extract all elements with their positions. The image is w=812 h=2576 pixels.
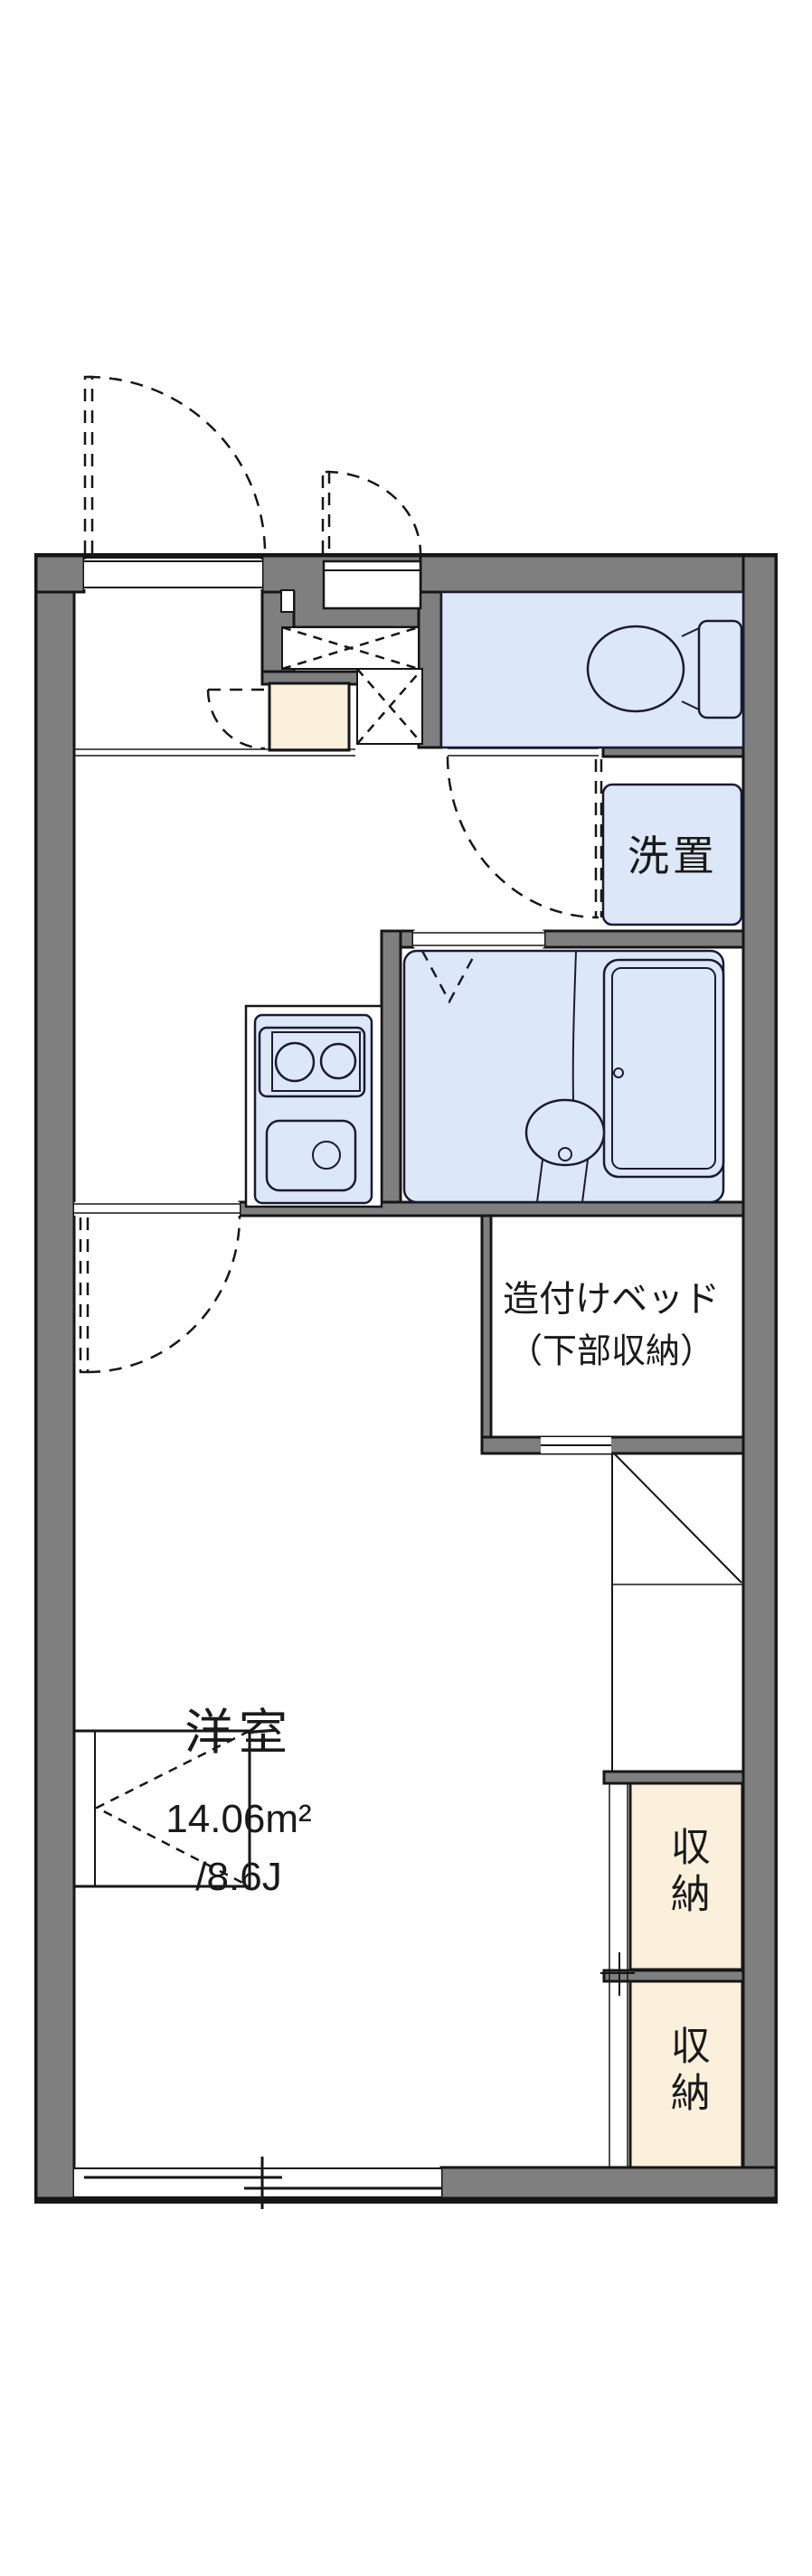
bathroom: [404, 951, 723, 1202]
wall-bed-bottom: [482, 1437, 743, 1453]
sink-icon: [267, 1121, 355, 1190]
hall-closet-door-swing: [208, 690, 265, 748]
room-door-swing: [80, 1216, 240, 1372]
toilet-door-swing: [448, 757, 601, 917]
storage-label-bottom: 収納: [665, 2025, 708, 2119]
room-name-label: 洋室: [184, 1706, 293, 1759]
shoe-cabinet: [269, 683, 349, 750]
room-area-sqm: 14.06m²: [165, 1798, 311, 1841]
toilet-room: [441, 592, 743, 747]
washer-space-label: 洗置: [628, 834, 718, 879]
door-swings: [80, 377, 601, 1372]
wall-slot: [281, 590, 294, 612]
wall-bath-top-left: [401, 931, 413, 947]
room-door-opening: [74, 1202, 240, 1216]
room-area-tatami: /8.6J: [195, 1856, 281, 1899]
openings: [74, 559, 611, 2209]
bathtub-icon: [604, 960, 723, 1177]
built-in-bed-sublabel: （下部収納）: [508, 1333, 714, 1370]
bed-wall-gap: [541, 1437, 611, 1453]
entrance-recess: [324, 561, 420, 608]
kitchen: [246, 1006, 382, 1207]
entrance-door-swing: [323, 472, 420, 553]
wall-toilet-bottom: [603, 747, 743, 757]
top-door-opening: [84, 559, 262, 589]
stove-icon: [260, 1028, 364, 1096]
wall-kitchen-bath-divider: [382, 931, 401, 1216]
column-diagonal: [614, 1453, 741, 1583]
storage-label-top: 収納: [665, 1826, 708, 1920]
wall-bed-left: [482, 1216, 491, 1453]
toilet-icon: [588, 621, 741, 718]
wall-top-left-segment: [36, 556, 84, 592]
built-in-bed-label: 造付けベッド: [503, 1280, 720, 1319]
wall-top-right-segment: [420, 556, 743, 592]
wall-left: [36, 556, 74, 2198]
wall-right: [743, 556, 776, 2198]
wall-bottom-right: [441, 2167, 776, 2198]
floorplan: 洗置 造付けベッド （下部収納） 洋室 14.06m² /8.6J 収納 収納: [0, 0, 812, 2576]
bathroom-door-opening: [413, 931, 544, 947]
wall-closet-top: [604, 1772, 743, 1783]
wall-bath-top-right: [544, 931, 743, 947]
balcony-door-swing: [85, 377, 265, 553]
wall-closet-divider: [604, 1970, 743, 1981]
